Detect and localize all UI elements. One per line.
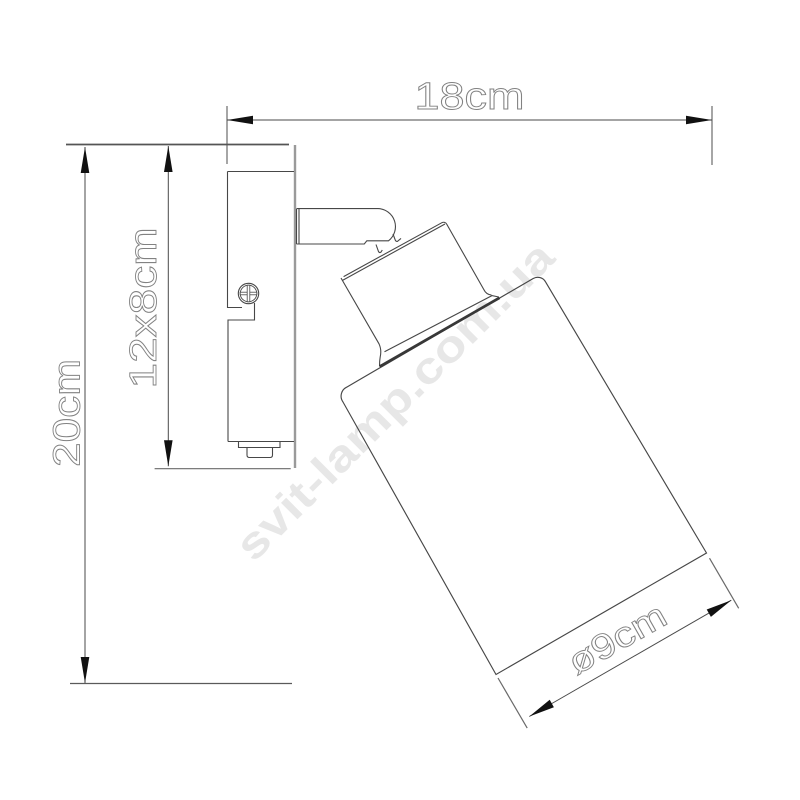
svg-text:20cm: 20cm	[47, 359, 89, 467]
svg-text:18cm: 18cm	[415, 76, 525, 118]
svg-text:12x8cm: 12x8cm	[123, 228, 165, 389]
